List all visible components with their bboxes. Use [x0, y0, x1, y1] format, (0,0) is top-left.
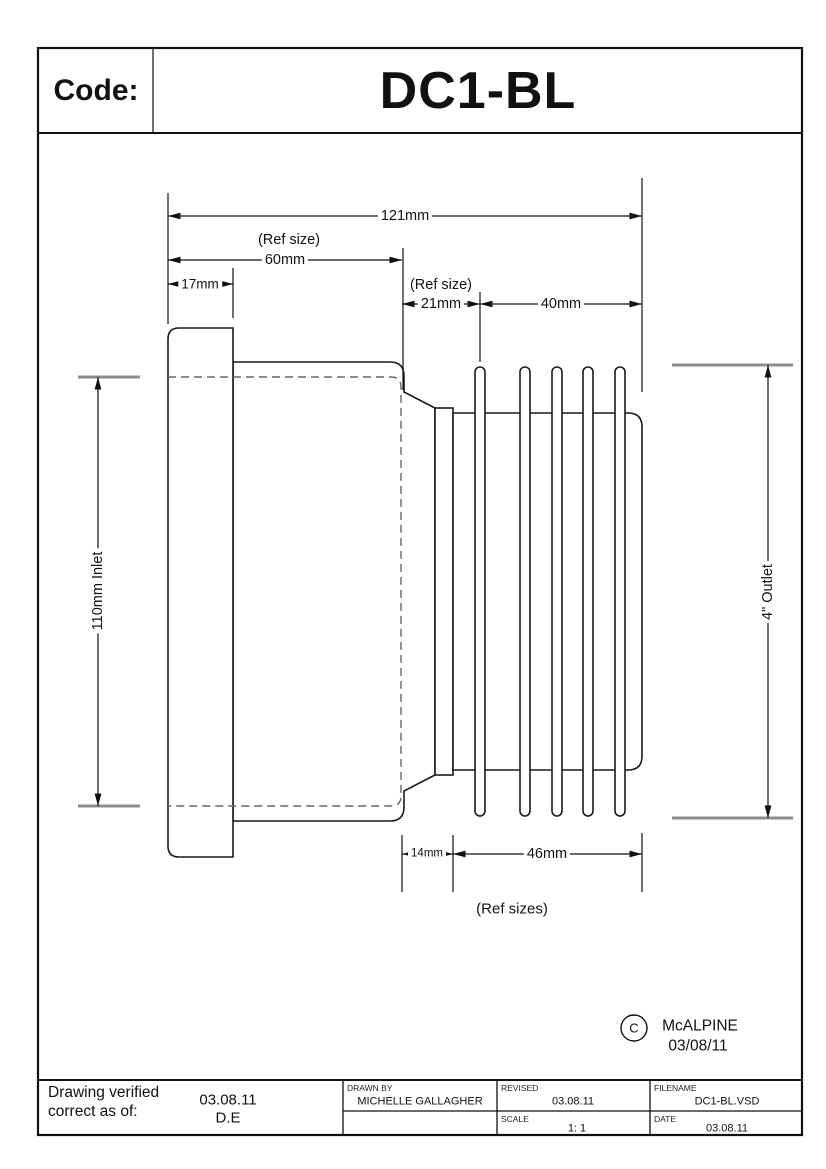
dim-label-overall-length: 121mm — [378, 209, 432, 224]
drawn-by-value: MICHELLE GALLAGHER — [357, 1097, 482, 1108]
code-label: Code: — [54, 76, 139, 106]
fin-4 — [583, 367, 593, 816]
dim-label-outlet-diameter: 4" Outlet — [761, 561, 776, 623]
copyright-symbol: C — [629, 1022, 638, 1035]
revised-value: 03.08.11 — [552, 1097, 594, 1108]
copyright-company: McALPINE — [662, 1018, 738, 1034]
verified-label: Drawing verified correct as of: — [48, 1084, 178, 1121]
fin-2 — [520, 367, 530, 816]
scale-value: 1: 1 — [568, 1124, 586, 1135]
date-value: 03.08.11 — [706, 1124, 748, 1135]
scale-label: SCALE — [501, 1115, 529, 1124]
dim-label-flange-length: 17mm — [178, 277, 222, 291]
body-cylinder — [233, 362, 435, 821]
fin-3 — [552, 367, 562, 816]
dim-label-neck-top: 21mm — [418, 297, 464, 312]
fin-5 — [615, 367, 625, 816]
date-label: DATE — [654, 1115, 676, 1124]
dim-label-neck-bottom: 14mm — [408, 848, 446, 860]
product-code: DC1-BL — [380, 65, 577, 117]
pan-connector-outline — [168, 328, 642, 857]
dim-label-inlet-diameter: 110mm Inlet — [91, 549, 106, 634]
copyright-date: 03/08/11 — [668, 1038, 727, 1054]
ref-size-note-mid: (Ref size) — [410, 278, 472, 293]
filename-label: FILENAME — [654, 1084, 697, 1093]
verified-initials: D.E — [215, 1111, 240, 1126]
fin-1 — [475, 367, 485, 816]
ref-size-note-top: (Ref size) — [258, 233, 320, 248]
verified-date: 03.08.11 — [199, 1093, 256, 1108]
drawn-by-label: DRAWN BY — [347, 1084, 393, 1093]
dim-label-fin-section-bottom: 46mm — [524, 847, 570, 862]
drawing-sheet: Code: DC1-BL 121mm (Ref size) 60mm 17mm … — [0, 0, 826, 1169]
dim-label-body-length: 60mm — [262, 253, 308, 268]
filename-value: DC1-BL.VSD — [695, 1097, 760, 1108]
drawing-canvas — [0, 0, 826, 1169]
neck-collar — [435, 408, 453, 775]
inlet-flange — [168, 328, 233, 857]
dim-label-fin-section-top: 40mm — [538, 297, 584, 312]
revised-label: REVISED — [501, 1084, 538, 1093]
ref-sizes-note-bottom: (Ref sizes) — [476, 902, 548, 917]
